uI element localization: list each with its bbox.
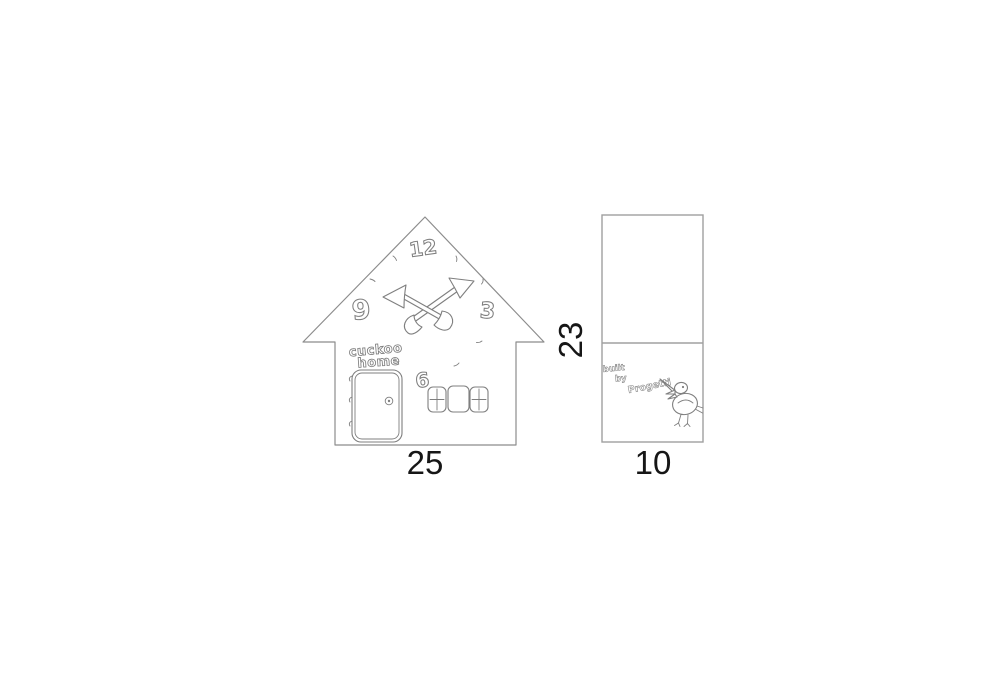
- hour-tick-10: [370, 279, 375, 282]
- side-view: built by Progetti: [602, 215, 703, 442]
- hour-tick-2: [482, 279, 484, 284]
- side-height-dimension: 23: [552, 322, 589, 359]
- bird-leg-left: [679, 415, 682, 424]
- clock-numeral-12: 12: [408, 234, 439, 262]
- bird-sketch: [660, 379, 703, 427]
- door: [349, 370, 402, 442]
- bird-foot-left: [675, 423, 681, 427]
- credit-line-by: by: [615, 373, 628, 384]
- bird-eye: [682, 386, 684, 388]
- hour-tick-5: [454, 363, 459, 366]
- cuckoo-home-sign: cuckoo home: [348, 341, 403, 372]
- sign-line-home: home: [357, 354, 401, 372]
- bird-leg-right: [688, 415, 689, 424]
- technical-drawing: 12 9 3 6: [0, 0, 1000, 700]
- bird-head: [674, 381, 689, 394]
- clock-numeral-6: 6: [414, 367, 430, 392]
- window-center-pane: [448, 386, 469, 412]
- window: [428, 386, 488, 412]
- hour-hand: [383, 285, 453, 330]
- dimension-drawing-canvas: 12 9 3 6: [0, 0, 1000, 700]
- clock-numeral-9: 9: [351, 294, 372, 327]
- hour-hand-head: [383, 285, 406, 308]
- hour-tick-4: [477, 341, 483, 343]
- door-inner-outline: [355, 373, 399, 439]
- side-width-dimension: 10: [635, 444, 672, 481]
- bird-foot-right: [684, 424, 690, 427]
- hour-tick-1: [456, 256, 457, 262]
- door-outline: [352, 370, 402, 442]
- door-knob-center: [388, 400, 390, 402]
- front-view: 12 9 3 6: [303, 217, 544, 445]
- front-width-dimension: 25: [407, 444, 444, 481]
- credit-line-progetti: Progetti: [627, 377, 672, 396]
- bird-beak-upper: [666, 390, 675, 394]
- hour-tick-11: [393, 256, 397, 261]
- clock-numeral-3: 3: [479, 299, 496, 325]
